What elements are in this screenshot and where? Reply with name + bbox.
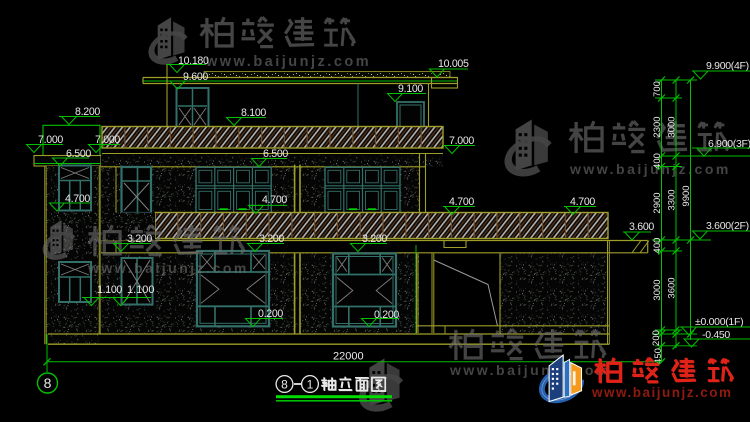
svg-text:www.baijunjz.com: www.baijunjz.com	[449, 362, 611, 378]
svg-text:3300: 3300	[667, 189, 678, 210]
svg-text:www.baijunjz.com: www.baijunjz.com	[205, 54, 371, 70]
svg-text:www.baijunjz.com: www.baijunjz.com	[87, 260, 249, 276]
svg-text:±0.000(1F): ±0.000(1F)	[695, 316, 743, 328]
svg-text:400: 400	[652, 153, 663, 169]
svg-text:3600: 3600	[667, 277, 678, 298]
svg-text:200: 200	[651, 330, 662, 346]
svg-text:www.baijunjz.com: www.baijunjz.com	[591, 385, 733, 400]
svg-text:1.100: 1.100	[97, 284, 122, 296]
svg-text:3000: 3000	[652, 279, 663, 300]
svg-text:2900: 2900	[652, 192, 663, 213]
svg-text:8: 8	[44, 375, 52, 391]
svg-text:1: 1	[307, 378, 314, 392]
svg-text:8: 8	[281, 378, 288, 392]
svg-text:9900: 9900	[681, 185, 692, 206]
svg-text:3000: 3000	[667, 116, 678, 137]
svg-text:9.900(4F): 9.900(4F)	[706, 60, 749, 72]
svg-text:2300: 2300	[652, 116, 663, 137]
svg-text:3.600: 3.600	[629, 221, 654, 233]
svg-text:10.005: 10.005	[438, 58, 469, 70]
svg-text:0.200: 0.200	[374, 309, 399, 321]
svg-text:3.600(2F): 3.600(2F)	[706, 220, 749, 232]
svg-text:1.100: 1.100	[127, 284, 155, 296]
svg-text:10.180: 10.180	[178, 55, 209, 67]
svg-text:4.700: 4.700	[262, 194, 287, 206]
svg-text:22000: 22000	[333, 351, 364, 363]
svg-text:400: 400	[652, 238, 663, 254]
svg-text:www.baijunjz.com: www.baijunjz.com	[569, 161, 731, 177]
svg-text:700: 700	[652, 81, 663, 97]
